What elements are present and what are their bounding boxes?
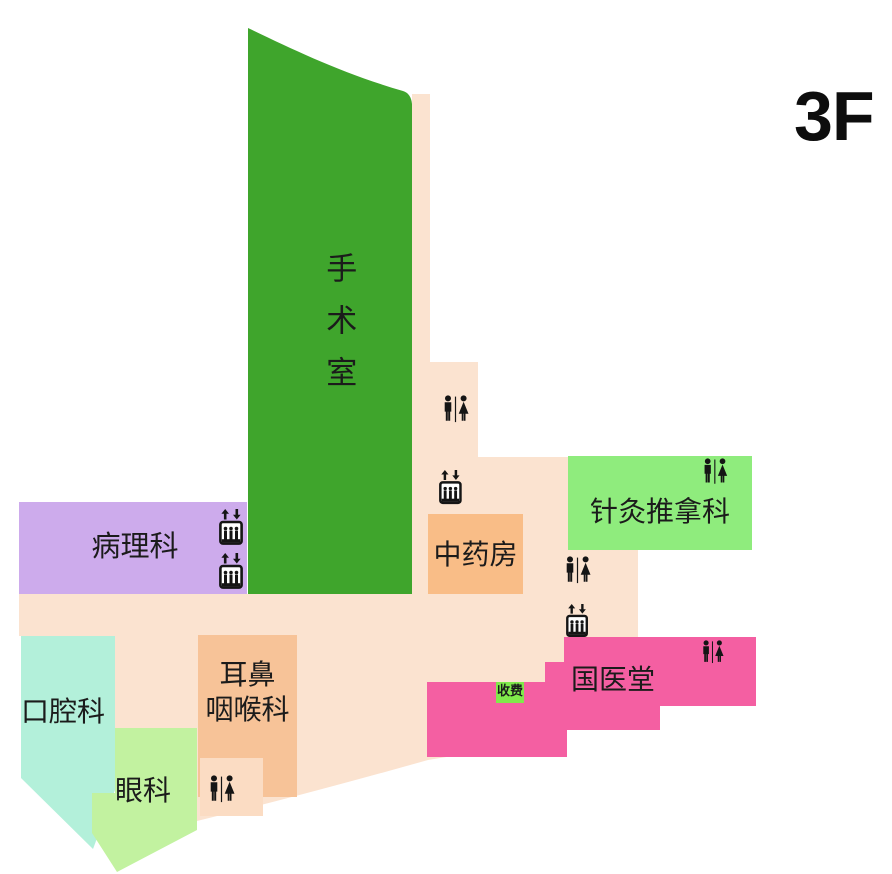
tcm-hall-label: 国医堂: [571, 663, 691, 697]
pathology-label: 病理科: [40, 529, 230, 564]
ent-label-line1: 耳鼻: [219, 658, 275, 691]
acupuncture-massage-label: 针灸推拿科: [568, 495, 752, 529]
chinese-pharmacy-label: 中药房: [428, 538, 523, 572]
floor-plan-3f: 3F 手术室 病理科 中药房 针灸推拿科 国医堂 收费 口腔科 耳鼻 咽喉科 眼…: [0, 0, 892, 874]
operating-room-label: 手术室: [319, 252, 356, 408]
floor-label: 3F: [794, 74, 890, 158]
ent-label: 耳鼻 咽喉科: [198, 657, 297, 727]
ophthalmology-label: 眼科: [115, 774, 197, 808]
oral-label: 口腔科: [21, 695, 115, 729]
floor-plan-canvas: [0, 0, 892, 874]
cashier-label: 收费: [496, 684, 524, 700]
ent-label-line2: 咽喉科: [205, 693, 289, 726]
